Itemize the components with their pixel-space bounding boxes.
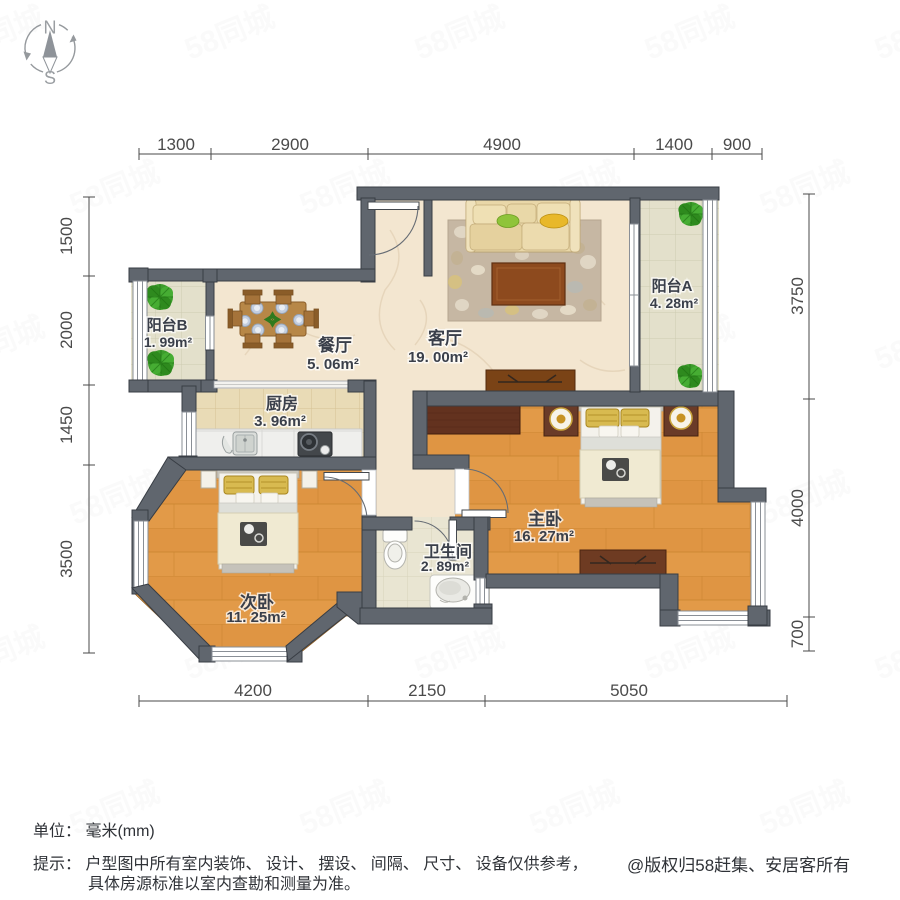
svg-text:4000: 4000 — [788, 489, 807, 527]
svg-text:阳台B: 阳台B — [147, 316, 188, 334]
svg-text:阳台A: 阳台A — [652, 277, 693, 295]
svg-text:2000: 2000 — [57, 311, 76, 349]
svg-text:2150: 2150 — [408, 681, 446, 700]
svg-text:主卧: 主卧 — [528, 509, 562, 529]
svg-text:提示： 户型图中所有室内装饰、 设计、 摆设、 间隔、 尺寸: 提示： 户型图中所有室内装饰、 设计、 摆设、 间隔、 尺寸、 设备仅供参考， — [33, 855, 588, 873]
svg-text:3. 96m²: 3. 96m² — [254, 413, 306, 430]
svg-text:客厅: 客厅 — [427, 328, 462, 348]
svg-text:1. 99m²: 1. 99m² — [144, 334, 193, 350]
svg-text:1400: 1400 — [655, 135, 693, 154]
svg-text:S: S — [44, 68, 56, 88]
svg-text:2900: 2900 — [271, 135, 309, 154]
svg-text:1450: 1450 — [57, 406, 76, 444]
svg-text:2. 89m²: 2. 89m² — [421, 558, 470, 574]
svg-text:4200: 4200 — [234, 681, 272, 700]
svg-text:700: 700 — [788, 620, 807, 648]
svg-text:厨房: 厨房 — [266, 394, 298, 413]
svg-text:5050: 5050 — [610, 681, 648, 700]
svg-text:餐厅: 餐厅 — [318, 335, 352, 355]
svg-text:1300: 1300 — [157, 135, 195, 154]
svg-text:1500: 1500 — [57, 217, 76, 255]
svg-text:具体房源标准以室内查勘和测量为准。: 具体房源标准以室内查勘和测量为准。 — [88, 875, 360, 893]
svg-text:单位： 毫米(mm): 单位： 毫米(mm) — [33, 821, 155, 840]
svg-text:3750: 3750 — [788, 277, 807, 315]
svg-text:19. 00m²: 19. 00m² — [408, 349, 468, 366]
svg-text:900: 900 — [723, 135, 751, 154]
svg-text:16. 27m²: 16. 27m² — [514, 528, 574, 545]
svg-text:@版权归58赶集、安居客所有: @版权归58赶集、安居客所有 — [627, 856, 850, 875]
svg-text:3500: 3500 — [57, 540, 76, 578]
svg-text:5. 06m²: 5. 06m² — [307, 356, 359, 373]
svg-text:4. 28m²: 4. 28m² — [650, 295, 699, 311]
svg-text:N: N — [44, 18, 57, 38]
svg-text:11. 25m²: 11. 25m² — [226, 609, 285, 626]
svg-text:4900: 4900 — [483, 135, 521, 154]
